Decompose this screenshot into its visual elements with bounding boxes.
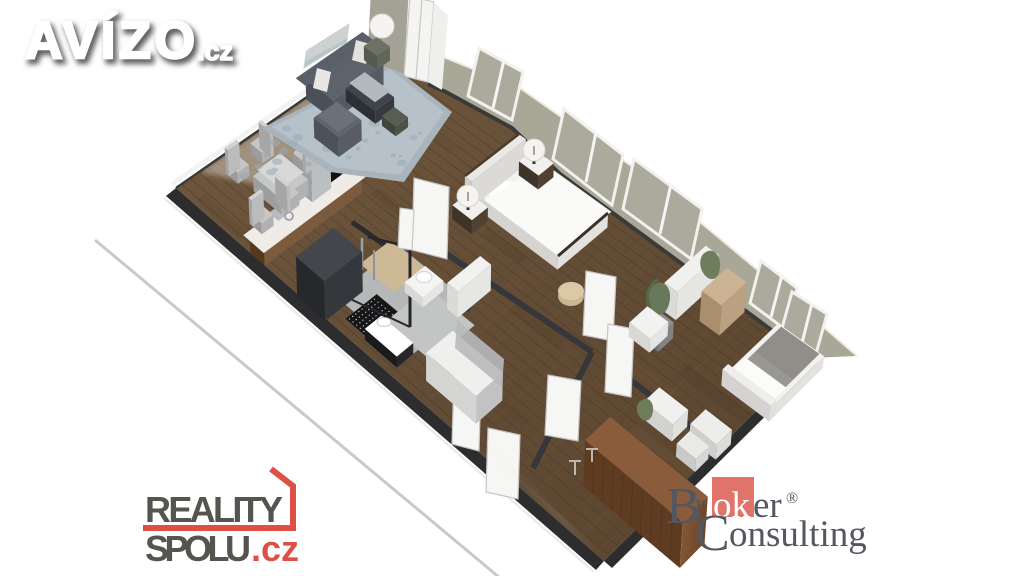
svg-text:AVÍZO: AVÍZO [25, 12, 195, 70]
svg-text:®: ® [786, 490, 798, 507]
svg-text:onsulting: onsulting [729, 514, 867, 555]
svg-text:.cz: .cz [197, 36, 233, 66]
svg-text:REALITY: REALITY [145, 489, 283, 530]
svg-text:.cz: .cz [251, 528, 299, 569]
svg-text:SPOLU: SPOLU [145, 528, 251, 569]
svg-text:C: C [695, 505, 730, 562]
